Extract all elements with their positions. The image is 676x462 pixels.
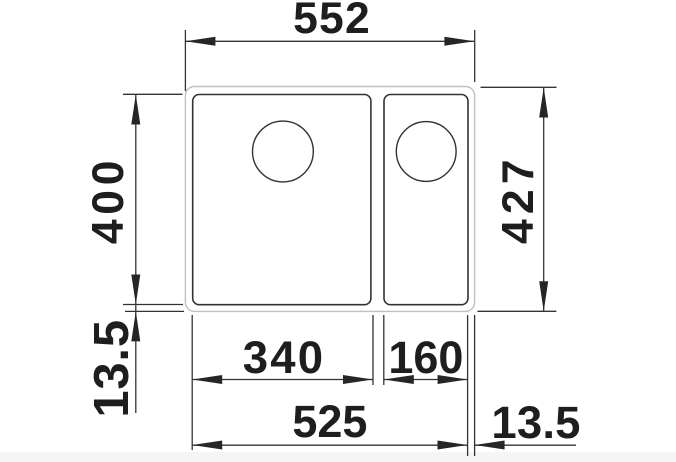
svg-text:160: 160 bbox=[388, 332, 463, 383]
svg-text:400: 400 bbox=[84, 156, 133, 244]
svg-text:340: 340 bbox=[243, 332, 326, 383]
svg-text:13.5: 13.5 bbox=[491, 397, 580, 448]
svg-text:13.5: 13.5 bbox=[85, 319, 139, 418]
svg-text:427: 427 bbox=[494, 154, 543, 244]
svg-text:525: 525 bbox=[292, 396, 367, 447]
svg-text:552: 552 bbox=[293, 0, 371, 43]
